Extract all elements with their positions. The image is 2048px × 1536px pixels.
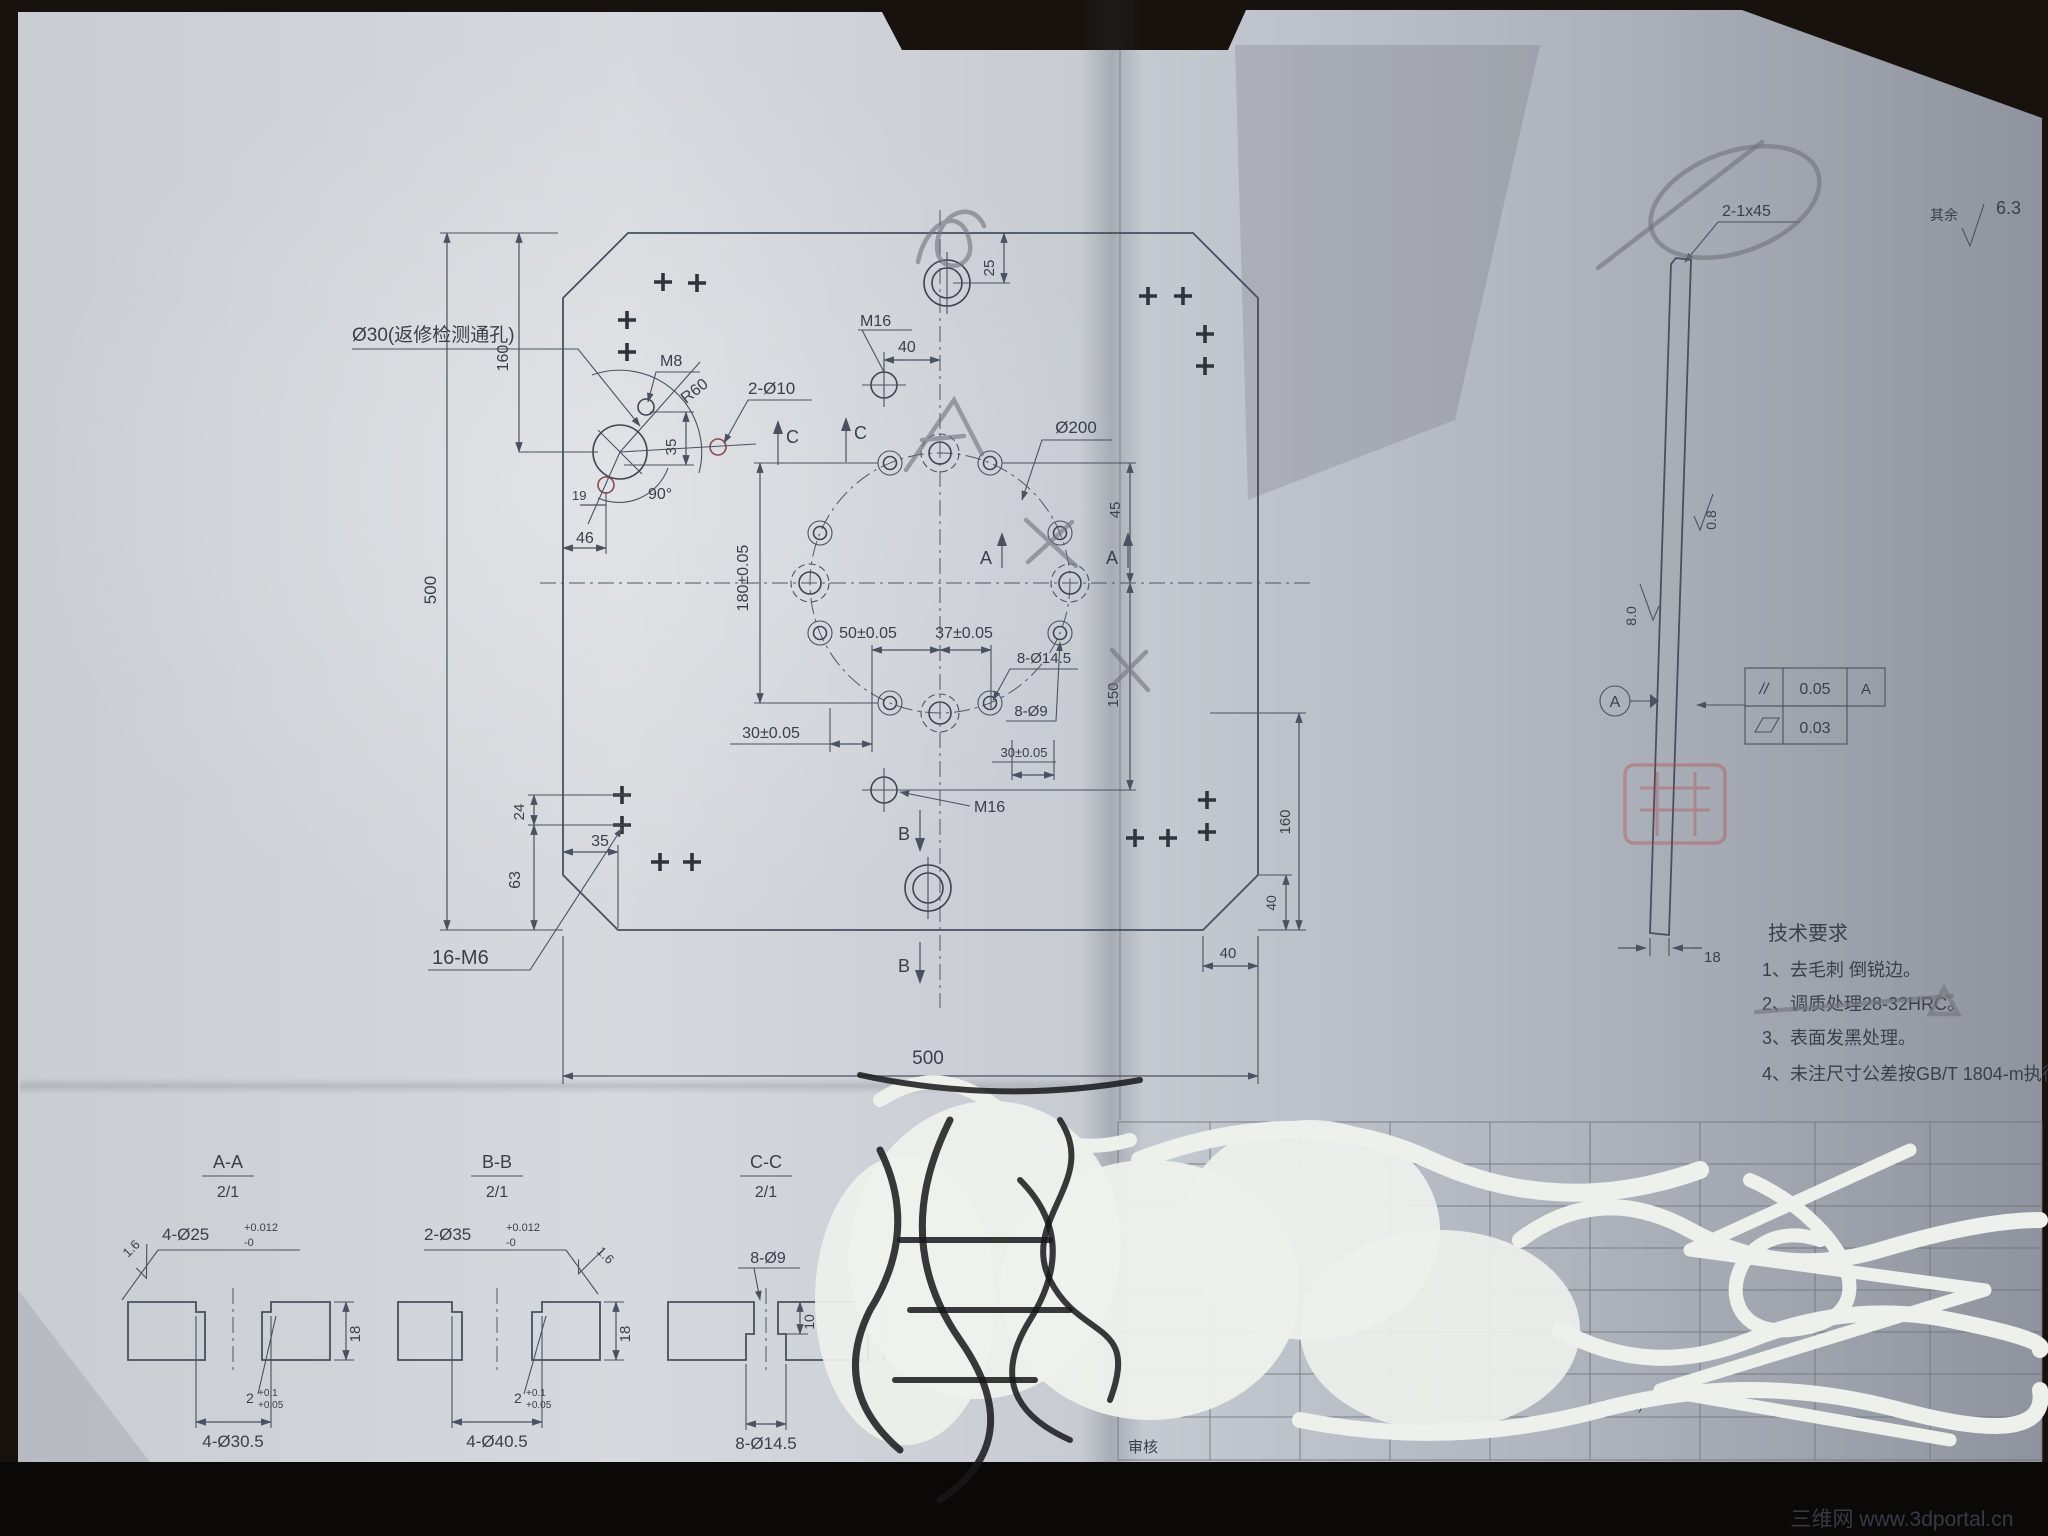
section-b-cbore: 4-Ø40.5 [466,1432,527,1451]
section-letter-a: A [1106,548,1118,568]
dim-35-lower: 35 [591,833,609,850]
dim-2xd10: 2-Ø10 [748,379,795,398]
section-b-title: B-B [482,1152,512,1172]
section-letter-b: B [898,956,910,976]
dim-25: 25 [981,260,998,277]
watermark: 三维网 www.3dportal.cn [1791,1508,2014,1531]
dim-40-top: 40 [898,339,916,356]
section-c-title: C-C [750,1152,782,1172]
rest-label: 其余 [1930,207,1958,223]
section-a-cbore: 4-Ø30.5 [202,1432,263,1451]
dim-18-side: 18 [1704,949,1721,966]
section-a-title: A-A [213,1152,243,1172]
dim-8xd9: 8-Ø9 [1014,703,1047,720]
dim-46: 46 [576,530,594,547]
dim-m8: M8 [660,353,682,370]
section-letter-c: C [854,423,867,443]
section-a-hole: 4-Ø25 [162,1225,209,1244]
section-a-depth: 2 [246,1390,254,1406]
section-a-thk: 18 [347,1326,364,1343]
roughness-right: 0.8 [1703,510,1719,530]
section-b-hole: 2-Ø35 [424,1225,471,1244]
dim-160-right: 160 [1277,809,1294,834]
dim-24: 24 [511,804,528,821]
fcf-parallel-ref: A [1861,681,1871,698]
roughness-left: 8.0 [1623,606,1639,626]
label-16-m6: 16-M6 [432,947,489,969]
dim-19: 19 [572,488,586,503]
section-b-tol-hi: +0.012 [506,1222,540,1234]
note-line: 1、去毛刺 倒锐边。 [1762,960,1921,980]
drawing-canvas: Ø30(返修检测通孔) M8 R60 2-Ø10 35 90° 19 46 25… [0,0,2048,1536]
section-c-cbore: 8-Ø14.5 [735,1434,796,1453]
section-b-depth-lo: +0.05 [526,1400,552,1411]
section-b-depth: 2 [514,1390,522,1406]
section-c-depth: 10 [801,1314,817,1330]
hole-note: Ø30(返修检测通孔) [352,324,515,346]
title-block-approver: 审核 [1128,1439,1158,1456]
dim-63: 63 [507,871,524,889]
datum-label: A [1610,694,1621,711]
roughness-general: 6.3 [1996,198,2021,218]
chamfer-note: 2-1x45 [1722,203,1771,220]
dim-d200: Ø200 [1055,418,1097,437]
fcf-parallel-symbol: // [1759,681,1770,698]
notes-title: 技术要求 [1768,922,1848,945]
section-a-depth-hi: +0.1 [258,1388,278,1399]
dim-35-upper: 35 [663,439,680,456]
fcf-flatness-value: 0.03 [1799,720,1830,737]
dim-160-left: 160 [495,345,512,372]
dim-40-bottom: 40 [1220,945,1237,962]
dim-8xd14-5: 8-Ø14.5 [1017,650,1071,667]
dim-500-left: 500 [421,576,440,604]
dim-180: 180±0.05 [735,545,752,612]
section-b-scale: 2/1 [486,1184,508,1201]
note-line: 4、未注尺寸公差按GB/T 1804-m执行。 [1762,1064,2048,1084]
dim-37: 37±0.05 [935,625,993,642]
dim-30-right: 30±0.05 [1001,745,1048,760]
section-c-scale: 2/1 [755,1184,777,1201]
photographed-blueprint: Ø30(返修检测通孔) M8 R60 2-Ø10 35 90° 19 46 25… [0,0,2048,1536]
section-a-scale: 2/1 [217,1184,239,1201]
section-b-thk: 18 [617,1326,634,1343]
note-line: 3、表面发黑处理。 [1762,1028,1916,1048]
section-letter-a: A [980,548,992,568]
desk-strip [0,1462,2048,1536]
section-letter-c: C [786,427,799,447]
dim-50: 50±0.05 [839,625,897,642]
section-b-tol-lo: -0 [506,1237,516,1249]
section-b-depth-hi: +0.1 [526,1388,546,1399]
fcf-parallel-value: 0.05 [1799,681,1830,698]
dim-90deg: 90° [648,486,672,503]
section-a-depth-lo: +0.05 [258,1400,284,1411]
dim-m16-top: M16 [860,313,891,330]
dim-45: 45 [1107,502,1124,519]
dim-40-right: 40 [1263,895,1279,911]
dim-500-bottom: 500 [912,1048,944,1069]
dim-m16-bottom: M16 [974,799,1005,816]
section-a-tol-lo: -0 [244,1237,254,1249]
dim-30-left: 30±0.05 [742,725,800,742]
section-c-hole: 8-Ø9 [750,1250,786,1267]
section-letter-b: B [898,824,910,844]
section-a-tol-hi: +0.012 [244,1222,278,1234]
